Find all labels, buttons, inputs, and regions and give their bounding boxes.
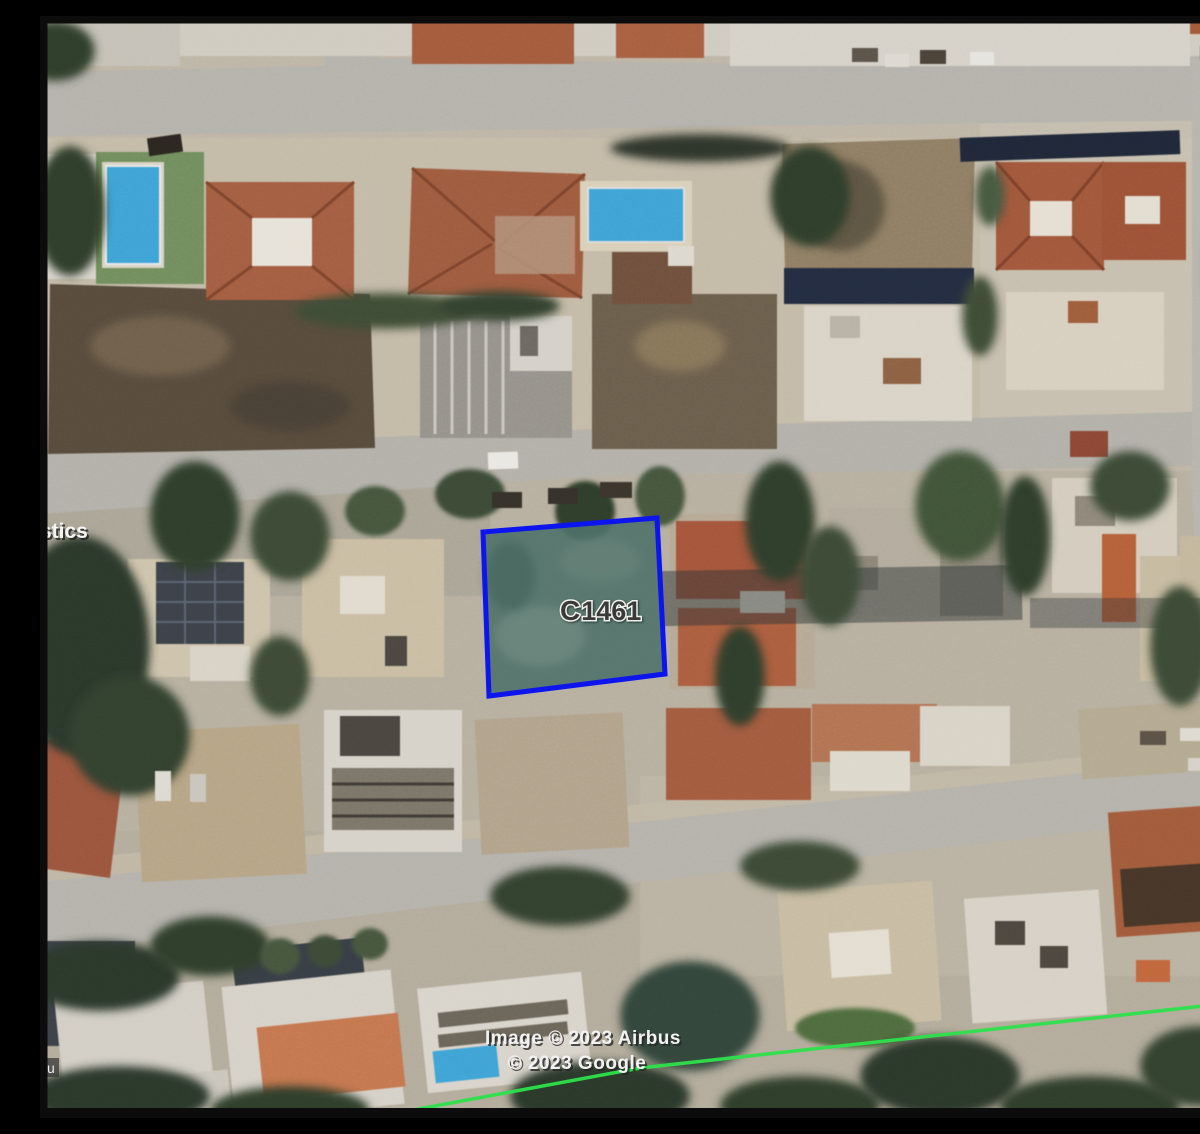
satellite-map-view[interactable]: C1461 stics stics u Image © 2023 Airbus … [40,16,1200,1118]
parcel-label: C1461 [560,595,641,626]
map-canvas: C1461 stics stics u Image © 2023 Airbus … [40,16,1200,1118]
image-border-bottom [40,1108,1200,1118]
attribution-line2: © 2023 Google [508,1053,647,1074]
bottom-edge-label: u [47,1060,55,1076]
parcel-1461[interactable]: C1461 [483,518,665,696]
attribution-line1: Image © 2023 Airbus [485,1028,681,1049]
